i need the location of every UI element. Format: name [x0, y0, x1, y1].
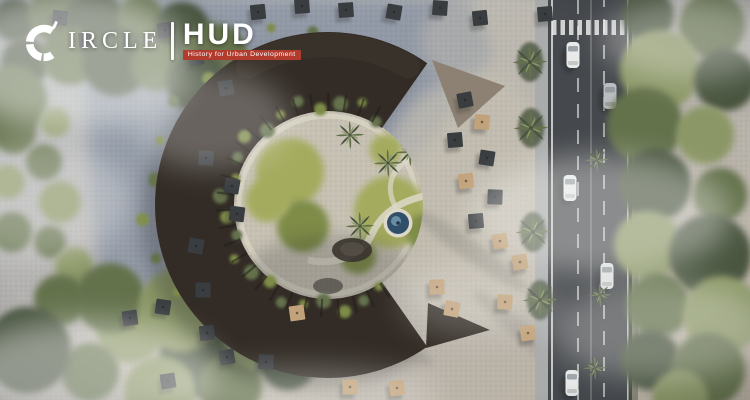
- logo-divider: [171, 22, 174, 60]
- fog-cloud: [400, 260, 560, 340]
- fog-cloud: [470, 155, 730, 275]
- brand-logo: IRCLE HUD History for Urban Development: [22, 18, 301, 64]
- hud-tagline: History for Urban Development: [183, 50, 301, 60]
- aerial-render: IRCLE HUD History for Urban Development: [0, 0, 750, 400]
- circle-c-ring-icon: [22, 18, 68, 64]
- hud-block: HUD History for Urban Development: [183, 23, 301, 60]
- fog-cloud: [130, 70, 290, 170]
- hud-wordmark: HUD: [183, 23, 257, 47]
- brand-wordmark: IRCLE: [68, 29, 162, 53]
